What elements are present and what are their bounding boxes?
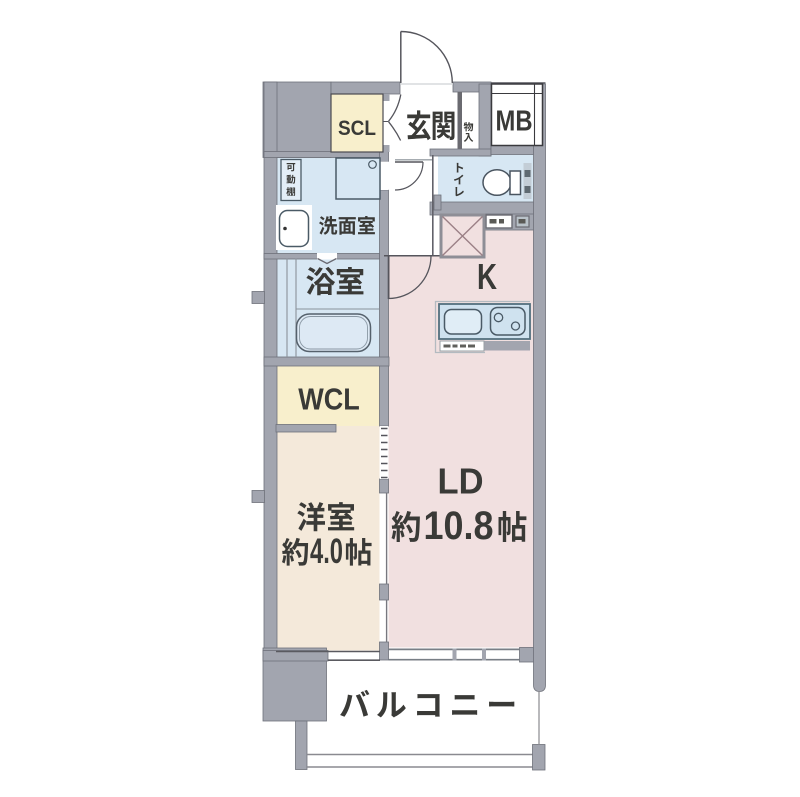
svg-text:4.0: 4.0	[310, 532, 343, 571]
svg-text:K: K	[477, 256, 497, 297]
svg-text:WCL: WCL	[298, 382, 360, 417]
svg-text:SCL: SCL	[338, 117, 376, 140]
svg-text:LD: LD	[438, 461, 484, 502]
svg-text:MB: MB	[496, 105, 533, 137]
svg-text:10.8: 10.8	[424, 504, 494, 548]
